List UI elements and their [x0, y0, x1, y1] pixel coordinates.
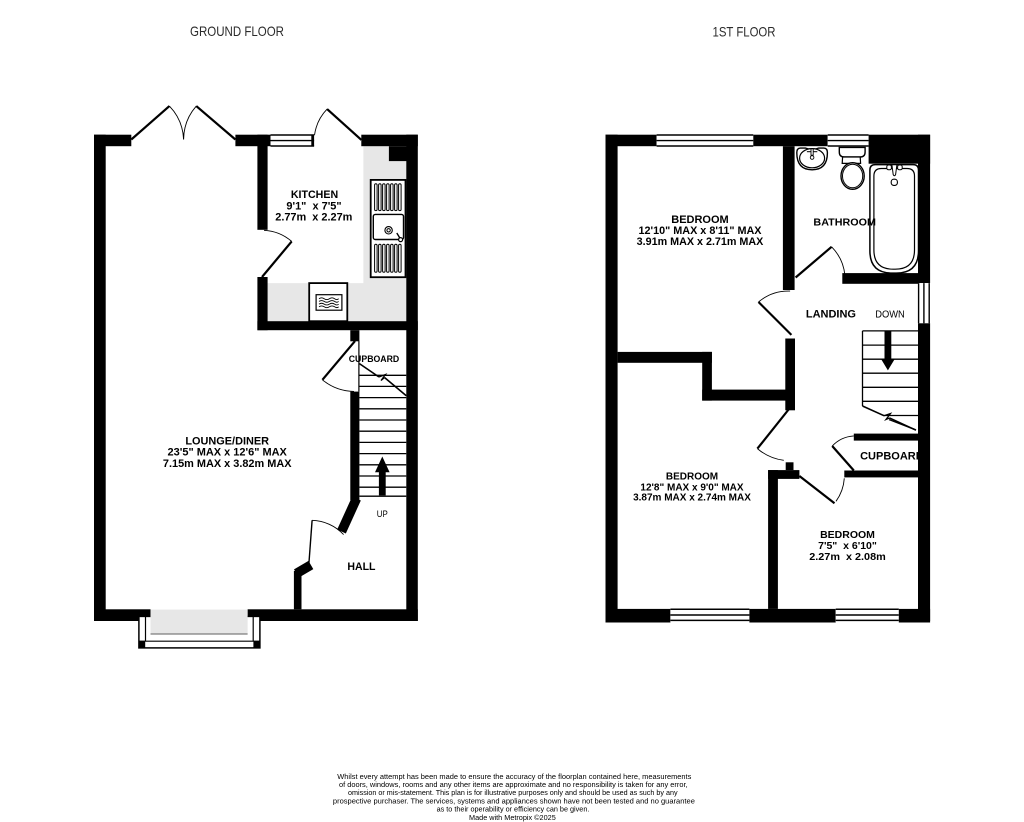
svg-text:3.87m MAX x 2.74m MAX: 3.87m MAX x 2.74m MAX [633, 493, 751, 504]
svg-text:Made with Metropix ©2025: Made with Metropix ©2025 [469, 813, 556, 822]
svg-text:BATHROOM: BATHROOM [813, 216, 876, 228]
svg-text:7.15m MAX x 3.82m MAX: 7.15m MAX x 3.82m MAX [163, 458, 292, 470]
svg-text:LANDING: LANDING [806, 308, 856, 320]
svg-text:BEDROOM: BEDROOM [666, 472, 718, 483]
svg-text:DOWN: DOWN [875, 309, 905, 320]
svg-text:23'5" MAX x 12'6" MAX: 23'5" MAX x 12'6" MAX [168, 447, 288, 459]
svg-text:CUPBOARD: CUPBOARD [349, 354, 400, 364]
svg-text:9'1" x 7'5": 9'1" x 7'5" [286, 200, 341, 212]
svg-text:2.27m x 2.08m: 2.27m x 2.08m [809, 551, 886, 563]
svg-text:GROUND FLOOR: GROUND FLOOR [190, 23, 284, 39]
svg-text:UP: UP [377, 509, 388, 520]
svg-text:HALL: HALL [347, 561, 375, 573]
svg-text:KITCHEN: KITCHEN [291, 189, 338, 201]
svg-text:CUPBOARD: CUPBOARD [860, 451, 924, 463]
svg-text:3.91m MAX x 2.71m MAX: 3.91m MAX x 2.71m MAX [637, 236, 764, 248]
svg-text:2.77m x 2.27m: 2.77m x 2.27m [275, 212, 352, 224]
svg-text:1ST FLOOR: 1ST FLOOR [713, 24, 776, 40]
svg-text:LOUNGE/DINER: LOUNGE/DINER [185, 436, 269, 448]
